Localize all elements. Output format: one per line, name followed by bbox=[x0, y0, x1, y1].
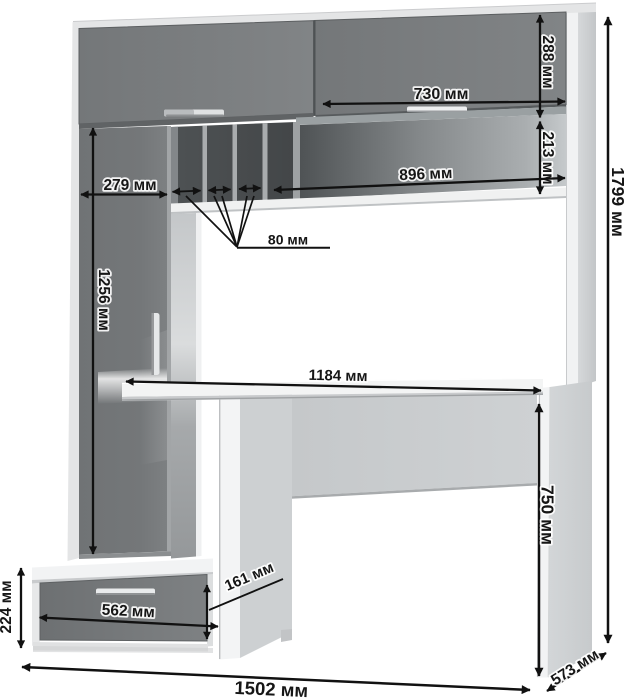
svg-text:896 мм: 896 мм bbox=[399, 165, 453, 184]
svg-text:750 мм: 750 мм bbox=[538, 485, 558, 545]
svg-text:288 мм: 288 мм bbox=[539, 35, 556, 88]
svg-text:1256 мм: 1256 мм bbox=[95, 269, 112, 331]
svg-text:213 мм: 213 мм bbox=[539, 131, 556, 184]
svg-text:1502 мм: 1502 мм bbox=[234, 677, 309, 700]
svg-text:562 мм: 562 мм bbox=[101, 602, 155, 622]
svg-text:224 мм: 224 мм bbox=[0, 580, 15, 633]
svg-text:80 мм: 80 мм bbox=[268, 232, 308, 248]
svg-text:279 мм: 279 мм bbox=[103, 177, 156, 194]
svg-text:730 мм: 730 мм bbox=[414, 86, 469, 103]
svg-text:1184 мм: 1184 мм bbox=[308, 367, 367, 385]
svg-text:1799 мм: 1799 мм bbox=[608, 167, 627, 237]
